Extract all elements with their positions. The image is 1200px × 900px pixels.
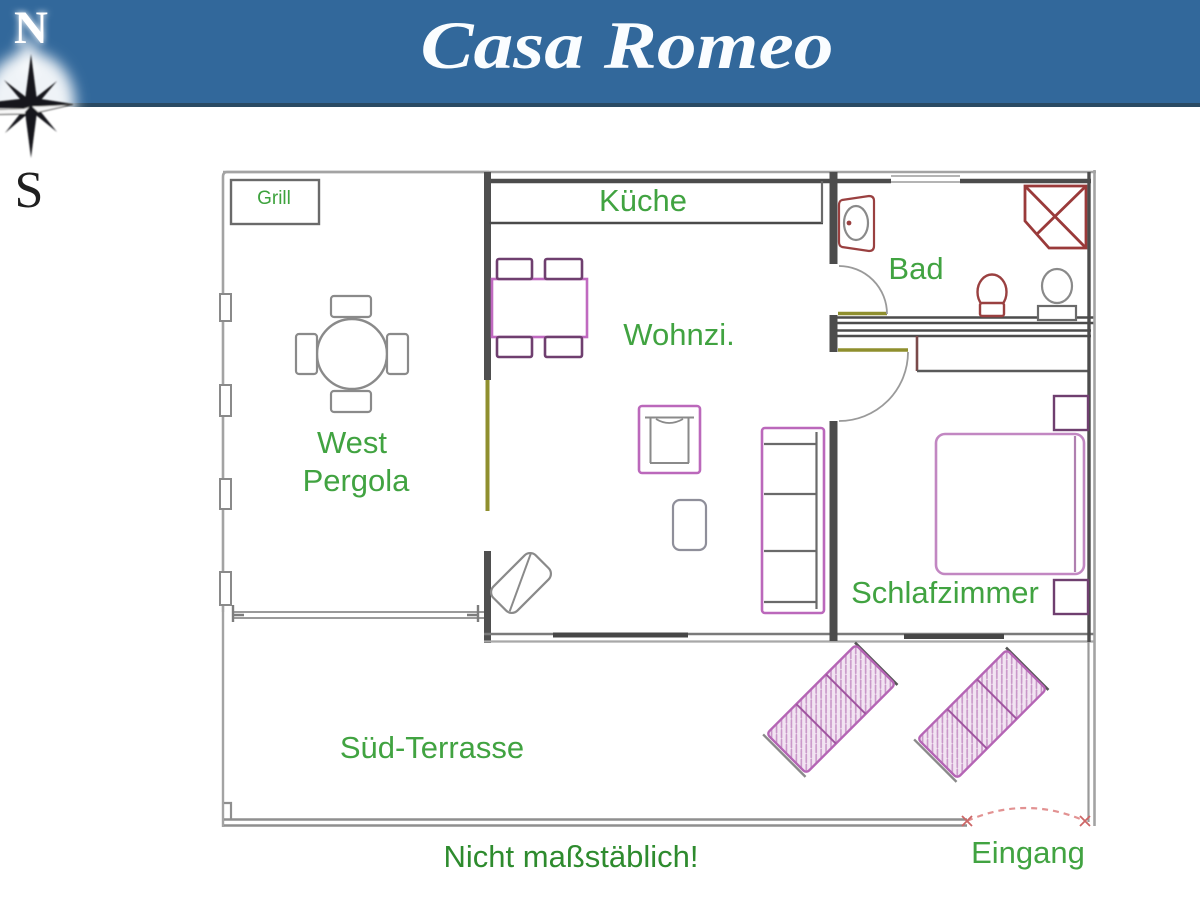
svg-text:N: N	[14, 2, 48, 54]
svg-text:Schlafzimmer: Schlafzimmer	[851, 575, 1039, 610]
svg-text:Grill: Grill	[257, 188, 291, 209]
svg-text:West: West	[317, 425, 387, 460]
svg-text:Nicht maßstäblich!: Nicht maßstäblich!	[444, 839, 699, 874]
svg-text:Eingang: Eingang	[971, 835, 1085, 870]
svg-text:Wohnzi.: Wohnzi.	[623, 317, 734, 352]
svg-text:Bad: Bad	[888, 251, 943, 286]
svg-text:Küche: Küche	[599, 183, 687, 218]
svg-text:Süd-Terrasse: Süd-Terrasse	[340, 730, 524, 765]
svg-text:Casa Romeo: Casa Romeo	[421, 7, 834, 83]
svg-text:Pergola: Pergola	[303, 463, 411, 498]
svg-text:S: S	[15, 162, 44, 219]
